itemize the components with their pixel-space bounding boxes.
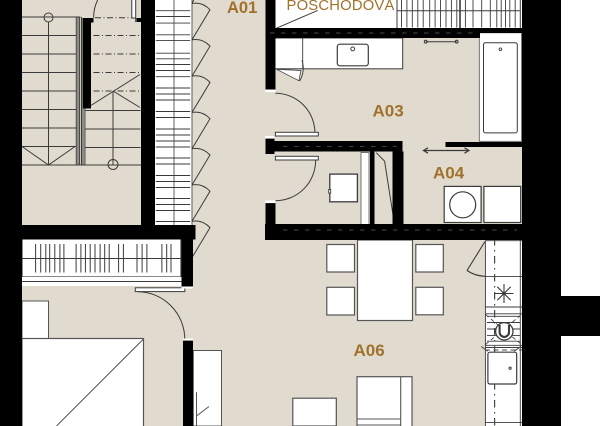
svg-text:A01: A01 <box>227 0 257 17</box>
svg-text:A06: A06 <box>354 341 385 360</box>
svg-text:A04: A04 <box>433 164 465 183</box>
svg-text:A03: A03 <box>373 102 404 121</box>
svg-text:POSCHODOVÁ: POSCHODOVÁ <box>287 0 395 14</box>
